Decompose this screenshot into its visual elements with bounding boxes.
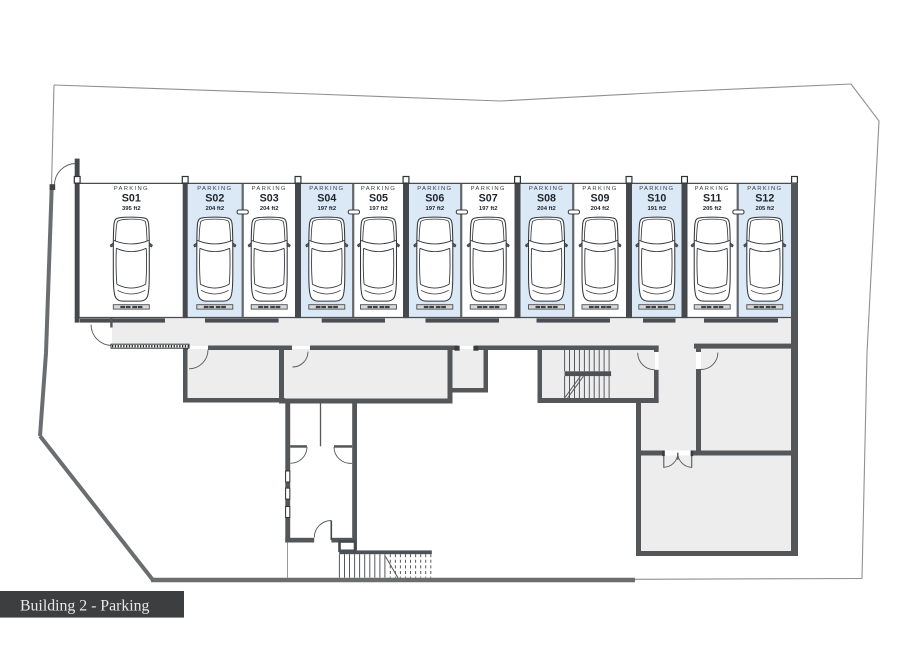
- svg-text:S06: S06: [425, 193, 444, 205]
- svg-text:395 ft2: 395 ft2: [122, 206, 141, 212]
- svg-text:S04: S04: [317, 193, 336, 205]
- svg-text:S11: S11: [703, 193, 721, 205]
- svg-text:PARKING: PARKING: [252, 186, 287, 192]
- svg-text:197 ft2: 197 ft2: [479, 206, 498, 212]
- svg-text:PARKING: PARKING: [695, 186, 730, 192]
- svg-text:191 ft2: 191 ft2: [647, 206, 666, 212]
- svg-text:S09: S09: [590, 193, 609, 205]
- svg-text:PARKING: PARKING: [309, 186, 344, 192]
- svg-text:PARKING: PARKING: [417, 186, 452, 192]
- svg-text:S03: S03: [260, 193, 279, 205]
- svg-text:Building 2 - Parking: Building 2 - Parking: [20, 598, 150, 615]
- svg-text:S10: S10: [647, 193, 666, 205]
- svg-text:S05: S05: [369, 193, 388, 205]
- svg-text:205 ft2: 205 ft2: [703, 206, 722, 212]
- svg-text:PARKING: PARKING: [114, 186, 149, 192]
- svg-text:204 ft2: 204 ft2: [591, 206, 610, 212]
- svg-text:S01: S01: [122, 193, 141, 205]
- svg-text:S08: S08: [537, 193, 556, 205]
- svg-text:S12: S12: [755, 193, 774, 205]
- svg-text:S07: S07: [479, 193, 498, 205]
- svg-text:S02: S02: [205, 193, 224, 205]
- svg-text:PARKING: PARKING: [471, 186, 506, 192]
- svg-text:204 ft2: 204 ft2: [205, 206, 224, 212]
- svg-text:205 ft2: 205 ft2: [755, 206, 774, 212]
- svg-text:204 ft2: 204 ft2: [260, 206, 279, 212]
- svg-text:PARKING: PARKING: [361, 186, 396, 192]
- svg-text:PARKING: PARKING: [747, 186, 782, 192]
- svg-text:197 ft2: 197 ft2: [369, 206, 388, 212]
- svg-text:PARKING: PARKING: [582, 186, 617, 192]
- svg-text:PARKING: PARKING: [197, 186, 232, 192]
- svg-text:PARKING: PARKING: [639, 186, 674, 192]
- svg-text:197 ft2: 197 ft2: [317, 206, 336, 212]
- svg-text:PARKING: PARKING: [529, 186, 564, 192]
- svg-text:204 ft2: 204 ft2: [537, 206, 556, 212]
- svg-text:197 ft2: 197 ft2: [425, 206, 444, 212]
